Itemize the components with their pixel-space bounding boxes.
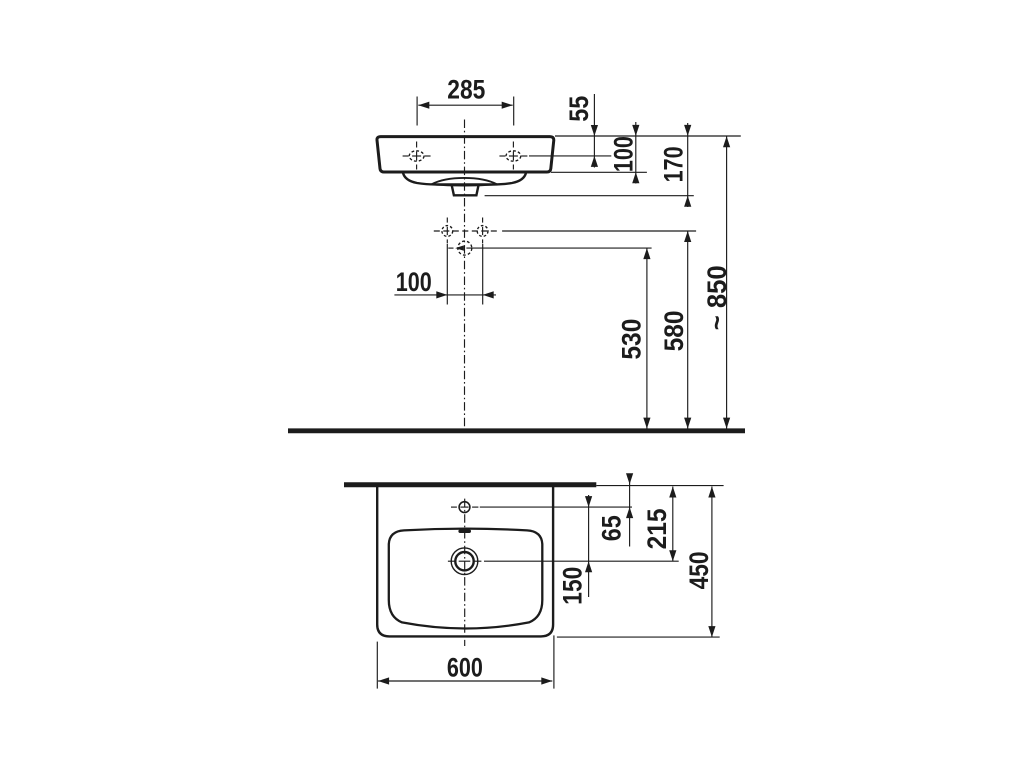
svg-text:55: 55: [564, 96, 594, 122]
svg-text:285: 285: [447, 74, 485, 104]
svg-text:530: 530: [617, 319, 647, 360]
svg-text:215: 215: [642, 508, 672, 549]
svg-text:170: 170: [658, 146, 688, 182]
svg-text:100: 100: [608, 136, 638, 172]
svg-text:65: 65: [597, 515, 627, 541]
svg-text:580: 580: [659, 310, 689, 351]
svg-text:600: 600: [447, 652, 483, 682]
svg-text:~ 850: ~ 850: [702, 265, 732, 330]
svg-text:100: 100: [396, 267, 432, 297]
svg-text:450: 450: [684, 551, 714, 589]
svg-text:150: 150: [557, 567, 587, 605]
